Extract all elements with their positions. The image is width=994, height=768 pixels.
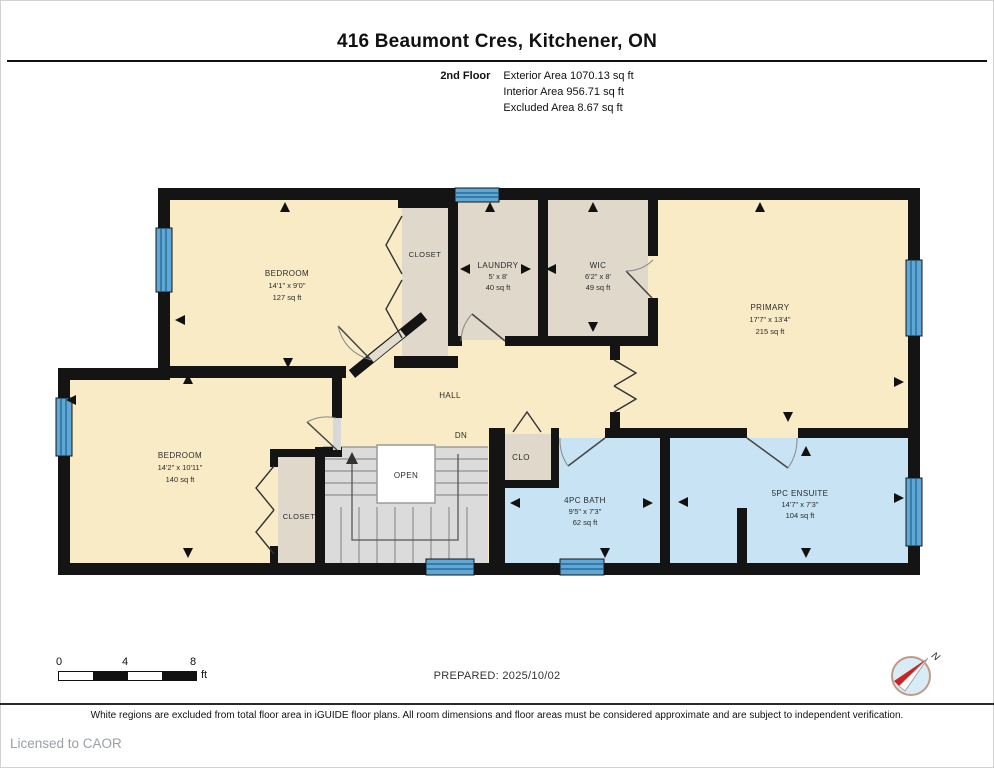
room-bedroom-top-dims: 14'1" x 9'0"	[269, 281, 306, 290]
compass-icon: N	[884, 643, 946, 705]
scale-tick-8: 8	[190, 656, 196, 668]
disclaimer-text: White regions are excluded from total fl…	[0, 710, 994, 721]
area-stats-lines: Exterior Area 1070.13 sq ft Interior Are…	[503, 68, 633, 116]
room-laundry-dims: 5' x 8'	[488, 272, 508, 281]
room-bedroom-bottom-dims: 14'2" x 10'11"	[158, 463, 203, 472]
header-divider	[7, 60, 987, 62]
room-closet-top-name: CLOSET	[409, 250, 441, 259]
room-bath-area: 62 sq ft	[573, 518, 599, 527]
room-bedroom-top-name: BEDROOM	[265, 269, 309, 278]
compass-north-label: N	[929, 650, 942, 664]
room-laundry-name: LAUNDRY	[478, 261, 519, 270]
prepared-date: PREPARED: 2025/10/02	[0, 670, 994, 682]
room-primary-area: 215 sq ft	[756, 327, 786, 336]
interior-area: Interior Area 956.71 sq ft	[503, 84, 633, 100]
footer-divider	[0, 703, 994, 705]
room-bedroom-bottom-area: 140 sq ft	[166, 475, 196, 484]
license-text: Licensed to CAOR	[10, 736, 122, 751]
floor-label: 2nd Floor	[440, 68, 490, 116]
room-bath-name: 4PC BATH	[564, 496, 606, 505]
room-ensuite-dims: 14'7" x 7'3"	[782, 500, 819, 509]
room-hall-name: HALL	[439, 391, 461, 400]
stairs-dn-label: DN	[455, 431, 467, 440]
page-title: 416 Beaumont Cres, Kitchener, ON	[0, 31, 994, 53]
scale-tick-4: 4	[122, 656, 128, 668]
room-closet-bottom-name: CLOSET	[283, 512, 315, 521]
room-bath-dims: 9'5" x 7'3"	[569, 507, 602, 516]
room-wic-area: 49 sq ft	[586, 283, 612, 292]
room-bedroom-top-area: 127 sq ft	[273, 293, 303, 302]
floorplan-drawing: BEDROOM 14'1" x 9'0" 127 sq ft CLOSET LA…	[0, 150, 994, 600]
room-laundry-area: 40 sq ft	[486, 283, 512, 292]
room-clo-name: CLO	[512, 453, 530, 462]
stairs-open-label: OPEN	[394, 471, 418, 480]
area-stats: 2nd Floor Exterior Area 1070.13 sq ft In…	[40, 68, 994, 116]
room-primary-dims: 17'7" x 13'4"	[749, 315, 790, 324]
room-bedroom-bottom-name: BEDROOM	[158, 451, 202, 460]
excluded-area: Excluded Area 8.67 sq ft	[503, 100, 633, 116]
scale-ticks: 0 4 8	[58, 656, 228, 670]
room-primary-name: PRIMARY	[750, 303, 789, 312]
exterior-area: Exterior Area 1070.13 sq ft	[503, 68, 633, 84]
scale-tick-0: 0	[56, 656, 62, 668]
room-wic-dims: 6'2" x 8'	[585, 272, 612, 281]
room-wic-name: WIC	[590, 261, 607, 270]
floorplan-page: 416 Beaumont Cres, Kitchener, ON 2nd Flo…	[0, 0, 994, 768]
room-ensuite-name: 5PC ENSUITE	[772, 489, 829, 498]
room-ensuite-area: 104 sq ft	[786, 511, 816, 520]
